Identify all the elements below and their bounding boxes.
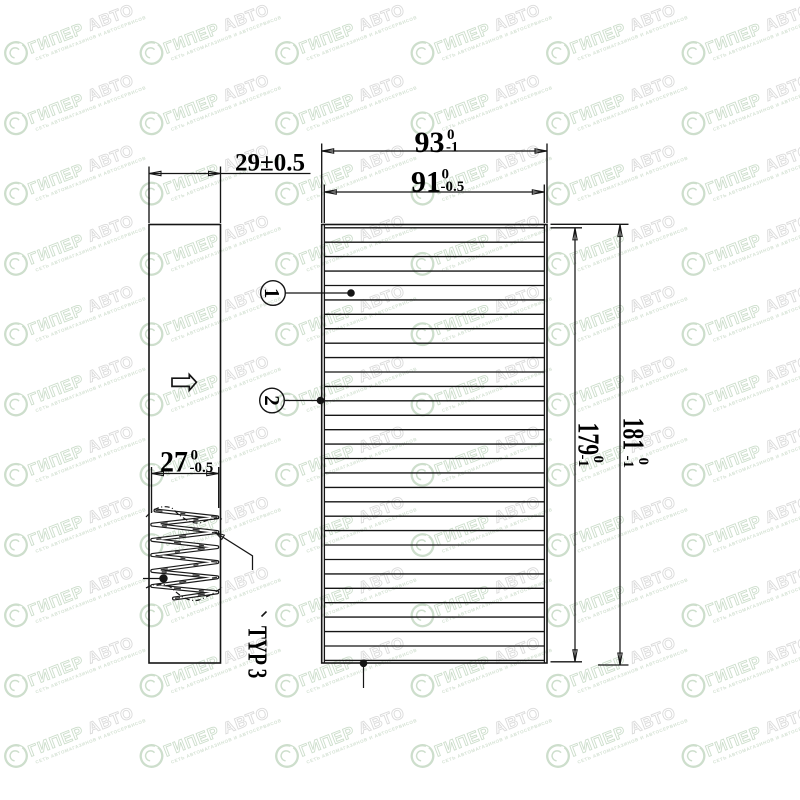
svg-text:2: 2: [260, 395, 284, 406]
svg-text:91: 91: [411, 166, 441, 199]
svg-text:-0.5: -0.5: [441, 179, 465, 195]
svg-text:27: 27: [160, 446, 188, 479]
svg-text:179: 179: [572, 423, 607, 456]
svg-text:-0.5: -0.5: [190, 460, 214, 476]
svg-text:93: 93: [415, 126, 445, 159]
svg-text:181: 181: [617, 418, 652, 451]
svg-text:1: 1: [260, 288, 284, 299]
svg-text:0: 0: [590, 456, 606, 464]
svg-text:TYP 3: TYP 3: [242, 626, 272, 678]
svg-text:-1: -1: [446, 140, 459, 156]
svg-text:-1: -1: [575, 455, 591, 468]
svg-text:29±0.5: 29±0.5: [235, 150, 305, 177]
svg-text:0: 0: [635, 458, 651, 466]
svg-text:-1: -1: [620, 456, 636, 469]
